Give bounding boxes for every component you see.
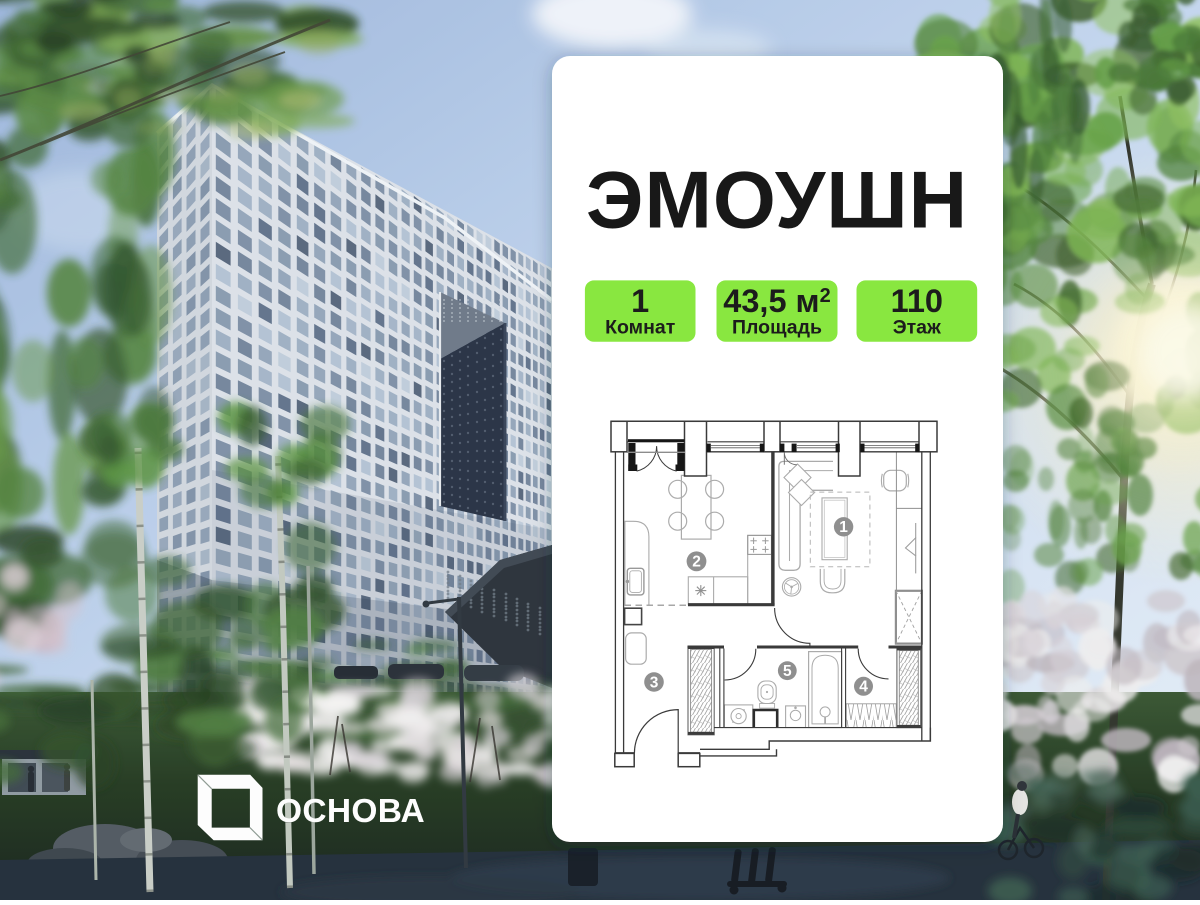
svg-text:5: 5 bbox=[783, 663, 792, 680]
svg-text:4: 4 bbox=[859, 679, 868, 696]
svg-text:ОСНОВА: ОСНОВА bbox=[276, 793, 425, 830]
svg-text:Комнат: Комнат bbox=[605, 317, 675, 339]
svg-text:3: 3 bbox=[650, 674, 659, 691]
svg-text:2: 2 bbox=[692, 554, 701, 571]
svg-text:Этаж: Этаж bbox=[893, 317, 941, 339]
svg-text:110: 110 bbox=[891, 283, 943, 319]
svg-text:43,5 м2: 43,5 м2 bbox=[723, 283, 830, 319]
svg-text:1: 1 bbox=[631, 283, 649, 319]
svg-text:Площадь: Площадь bbox=[732, 317, 822, 339]
svg-text:ЭМОУШН: ЭМОУШН bbox=[586, 156, 968, 246]
svg-text:1: 1 bbox=[839, 519, 848, 536]
